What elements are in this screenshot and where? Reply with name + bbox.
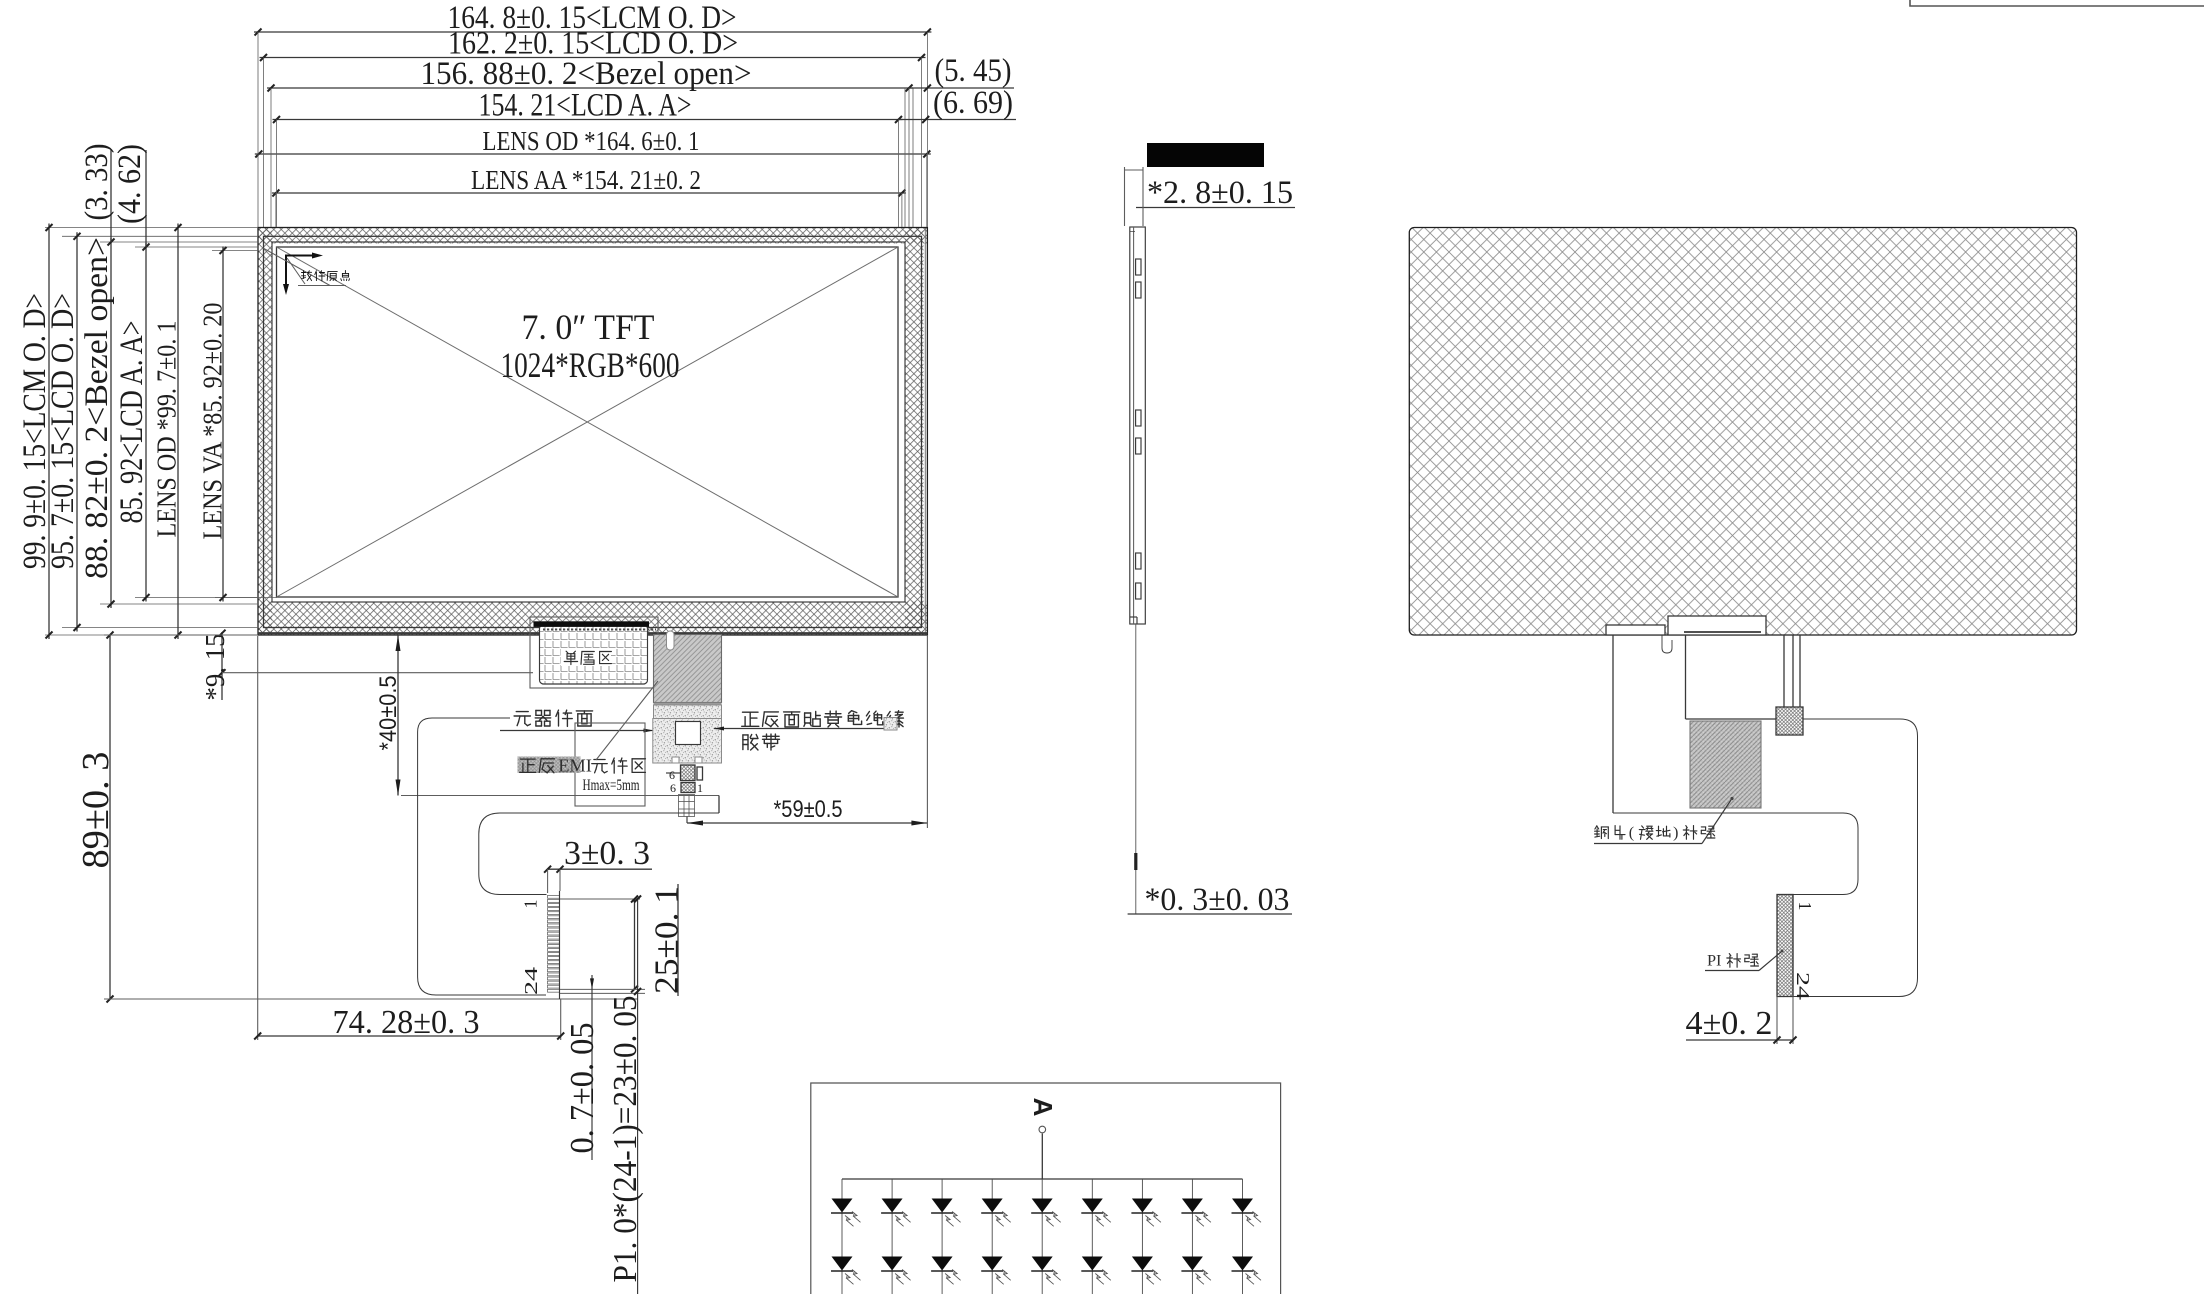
svg-text:Hmax=5mm: Hmax=5mm — [583, 777, 640, 794]
svg-text:PI: PI — [1707, 951, 1721, 970]
svg-text:6: 6 — [669, 768, 675, 782]
svg-text:P1. 0*(24-1)=23±0. 05: P1. 0*(24-1)=23±0. 05 — [607, 996, 644, 1283]
svg-text:1: 1 — [1795, 902, 1815, 911]
svg-text:89±0. 3: 89±0. 3 — [75, 752, 117, 869]
svg-text:154. 21<LCD A. A>: 154. 21<LCD A. A> — [479, 88, 692, 124]
svg-text:7. 0″ TFT: 7. 0″ TFT — [522, 307, 655, 347]
svg-text:3±0. 3: 3±0. 3 — [564, 835, 650, 872]
svg-text:LENS OD *164. 6±0. 1: LENS OD *164. 6±0. 1 — [483, 126, 700, 156]
svg-text:*2. 8±0. 15: *2. 8±0. 15 — [1147, 175, 1293, 211]
svg-text:95. 7±0. 15<LCD O. D>: 95. 7±0. 15<LCD O. D> — [45, 293, 81, 569]
svg-text:LENS VA *85. 92±0. 20: LENS VA *85. 92±0. 20 — [198, 303, 228, 540]
svg-text:74. 28±0. 3: 74. 28±0. 3 — [333, 1004, 480, 1041]
svg-text:(3. 33): (3. 33) — [79, 144, 115, 221]
svg-text:(: ( — [1629, 823, 1634, 842]
svg-text:): ) — [1673, 823, 1678, 842]
svg-text:1024*RGB*600: 1024*RGB*600 — [501, 345, 680, 385]
svg-text:LENS AA *154. 21±0. 2: LENS AA *154. 21±0. 2 — [471, 165, 701, 195]
svg-text:*9. 15: *9. 15 — [200, 634, 230, 701]
svg-text:85. 92<LCD A. A>: 85. 92<LCD A. A> — [114, 321, 150, 524]
svg-text:1: 1 — [697, 781, 703, 795]
svg-text:A: A — [1028, 1098, 1058, 1117]
svg-text:88. 82±0. 2<Bezel open>: 88. 82±0. 2<Bezel open> — [79, 237, 115, 579]
svg-text:25±0. 1: 25±0. 1 — [649, 886, 686, 994]
svg-text:EMI: EMI — [558, 755, 592, 775]
svg-text:6: 6 — [670, 781, 676, 795]
svg-text:24: 24 — [521, 967, 541, 995]
svg-text:24: 24 — [1793, 972, 1813, 1000]
svg-text:(4. 62): (4. 62) — [112, 144, 148, 224]
svg-text:*40±0.5: *40±0.5 — [375, 676, 402, 751]
svg-text:(6. 69): (6. 69) — [933, 85, 1013, 121]
svg-text:LENS OD *99. 7±0. 1: LENS OD *99. 7±0. 1 — [152, 321, 182, 538]
svg-text:4±0. 2: 4±0. 2 — [1686, 1005, 1773, 1042]
svg-text:*0. 3±0. 03: *0. 3±0. 03 — [1145, 882, 1290, 918]
svg-text:(5. 45): (5. 45) — [935, 53, 1012, 89]
svg-text:*59±0.5: *59±0.5 — [774, 796, 843, 823]
svg-text:1: 1 — [521, 900, 541, 909]
svg-text:0. 7±0. 05: 0. 7±0. 05 — [564, 1023, 601, 1154]
